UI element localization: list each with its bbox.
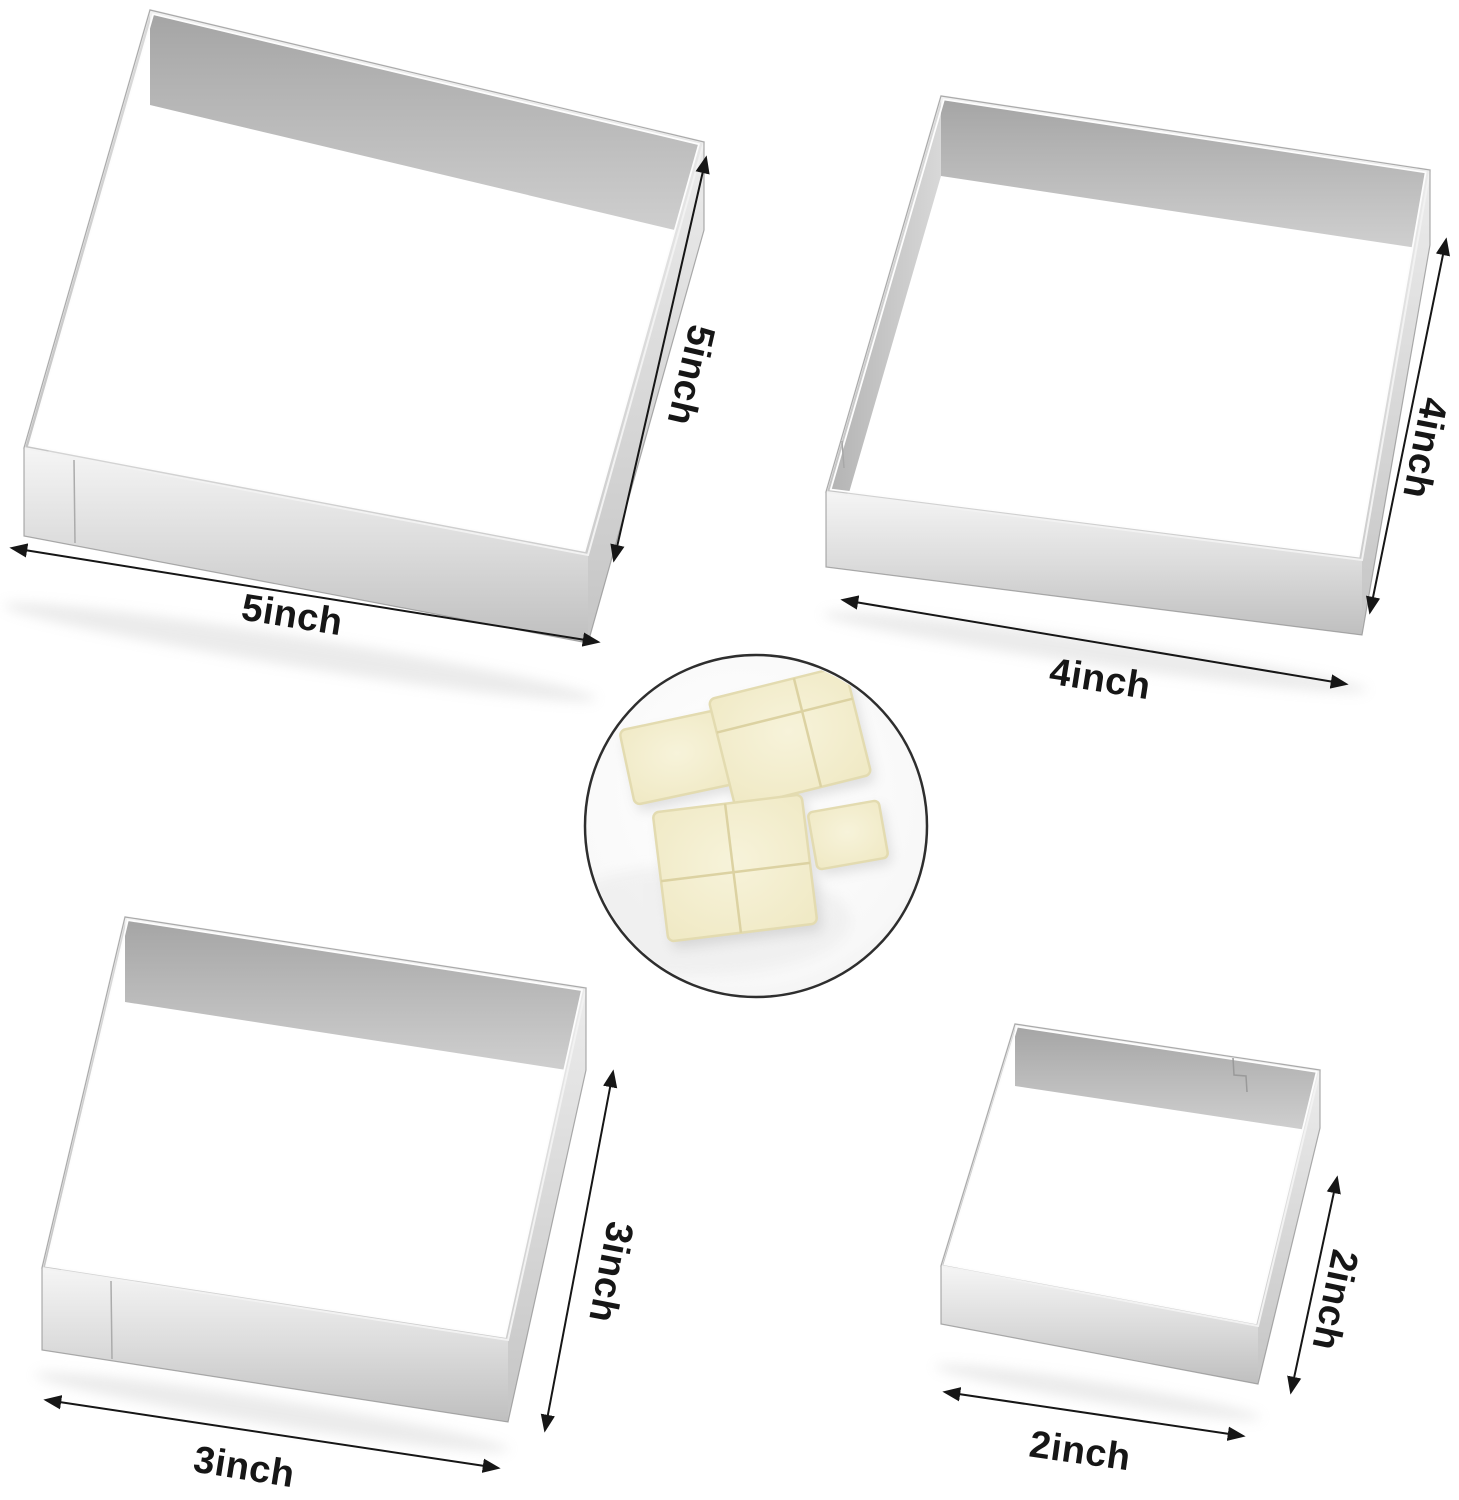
molds-illustration bbox=[0, 0, 1459, 1500]
product-photo: 5inch 5inch 4inch 4inch 3inch 3inch 2inc… bbox=[0, 0, 1459, 1500]
bread-slices-inset bbox=[550, 655, 927, 997]
square-mold-4inch bbox=[826, 96, 1430, 635]
mold-seam bbox=[74, 460, 75, 543]
square-mold-2inch bbox=[941, 1024, 1320, 1388]
square-mold-5inch bbox=[24, 10, 704, 650]
bread-piece-large-cut bbox=[653, 794, 818, 941]
mold-seam bbox=[111, 1281, 112, 1359]
square-mold-3inch bbox=[42, 917, 586, 1425]
bread-piece-smallest bbox=[808, 800, 889, 870]
